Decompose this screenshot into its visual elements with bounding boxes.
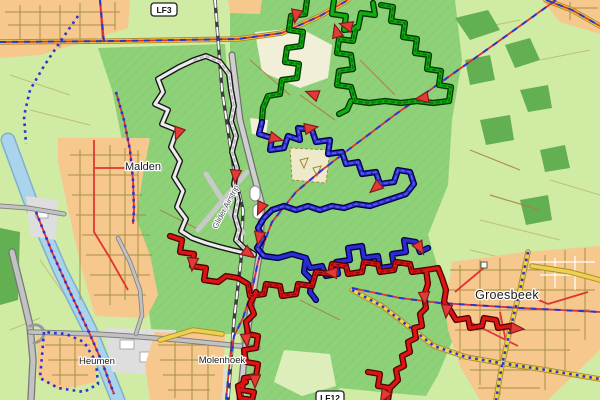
town-label-molenhoek: Molenhoek	[199, 355, 246, 366]
town-label-malden: Malden	[125, 161, 161, 173]
map-canvas[interactable]: LF3 LF12 Malden Groesbeek Heumen Molenho…	[0, 0, 600, 400]
town-area-topcenter	[228, 0, 262, 14]
badge-lf3: LF3	[151, 3, 177, 16]
poi-marker-icon	[481, 262, 487, 268]
badge-lf12-label: LF12	[320, 393, 340, 400]
badge-lf3-label: LF3	[156, 5, 171, 15]
town-label-groesbeek: Groesbeek	[475, 288, 539, 302]
town-label-heumen: Heumen	[79, 356, 115, 367]
road-structure	[250, 186, 260, 201]
badge-lf12: LF12	[316, 391, 344, 400]
